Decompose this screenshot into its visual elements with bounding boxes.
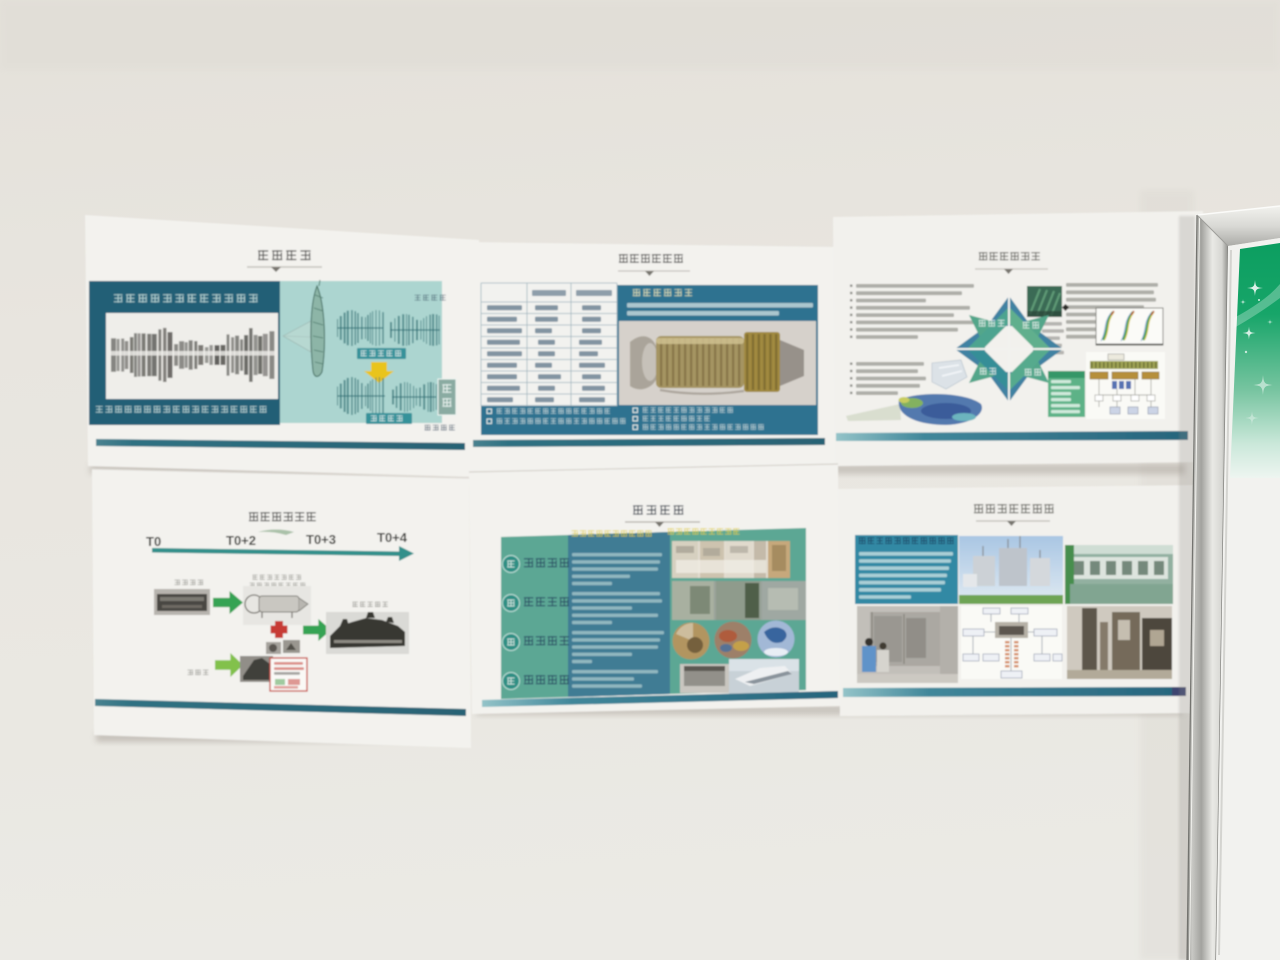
svg-text:T0+3: T0+3 xyxy=(306,532,336,547)
svg-text:T0+2: T0+2 xyxy=(226,533,256,548)
svg-text:T0+4: T0+4 xyxy=(377,530,408,545)
svg-text:T0: T0 xyxy=(146,534,161,549)
